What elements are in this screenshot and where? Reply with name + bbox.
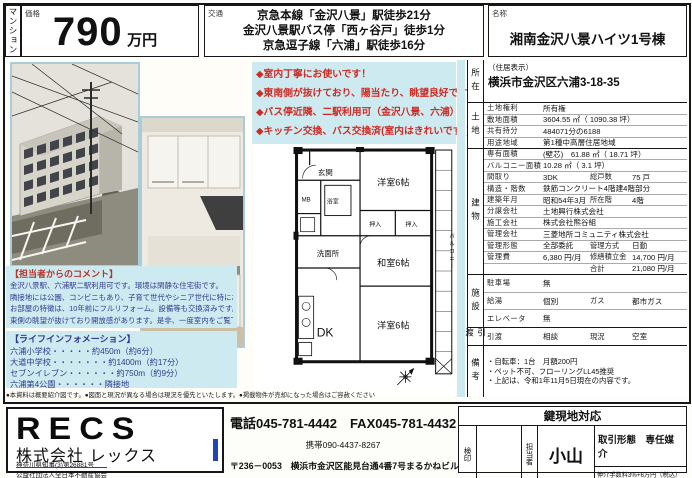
key-handling-box: 鍵現地対応 検印 担当者 小山 取引形態 専任媒介 仲介手数料3%+6万円（税込… (458, 406, 687, 473)
table-row: バルコニー面積10.28 ㎡（ 3.1 坪） (484, 160, 687, 171)
company-address: 〒236－0053 横浜市金沢区能見台通4番7号まるかねビル3-ノ (230, 459, 456, 472)
life-info-line: セブンイレブン・・・・・・約750m（約9分） (10, 368, 233, 379)
life-info-title: 【ライフインフォメーション】 (10, 333, 233, 346)
location-note: （住居表示） (484, 60, 687, 73)
agent-comment-title: 【担当者からのコメント】 (10, 268, 233, 280)
remarks-tag: 備考 (468, 346, 484, 397)
floorplan-closet2-label: 押入 (405, 221, 417, 229)
facility-tag: 施設 (468, 275, 484, 327)
remark-line: ・ペット不可、フローリングLL45推奨 (484, 367, 687, 377)
life-info-box: 【ライフインフォメーション】 六浦小学校・・・・・約450m（約6分） 大道中学… (6, 331, 237, 388)
fine-print: ●本資料は概要紹介図です。●図面と現況が異なる場合は現況を優先といたします。●掲… (6, 390, 456, 399)
floorplan-closet1-label: 押入 (369, 221, 381, 229)
contact-block: 電話045-781-4442 FAX045-781-4432 携帯090-443… (230, 409, 456, 473)
highlight-line: ◆東南側が抜けており、陽当たり、眺望良好です！ (256, 84, 452, 103)
remark-line: ・自転車：1台 月額200円 (484, 357, 687, 367)
land-tag: 土地 (468, 103, 484, 148)
property-name: 湘南金沢八景ハイツ1号棟 (489, 28, 686, 48)
property-category-tab: マンション (5, 5, 21, 57)
floor-plan: 玄関 MB 浴室 洗面所 洋室6帖 押入 押入 和室6帖 洋室6帖 DK バルコ… (254, 145, 456, 395)
phone-fax: 電話045-781-4442 FAX045-781-4432 (230, 413, 456, 432)
agent-comment-line: お部屋の特徴は、10年前にフルリフォーム。設備等も交換済みです。 (10, 303, 233, 315)
price-box: 価格 790 万円 (21, 5, 199, 57)
seal-label: 検印 (459, 426, 477, 478)
section-handover: 引渡 引渡相談現況空室 (468, 328, 687, 346)
table-row: 用途地域第1種中高層住居地域 (484, 138, 687, 149)
floorplan-balcony-label: バルコニー (447, 233, 455, 271)
agent-comment-box: 【担当者からのコメント】 金沢八景駅、六浦駅二駅利用可です。環境は閑静な住宅街で… (6, 266, 237, 328)
floorplan-mb-label: MB (302, 197, 311, 203)
table-row: エレベータ無 (484, 310, 687, 327)
agent-comment-line: 東側の眺望が抜けており開放感があります。是非、一度室内をご覧下さい！ (10, 315, 233, 327)
life-info-line: 六浦小学校・・・・・約450m（約6分） (10, 346, 233, 357)
key-handling-title: 鍵現地対応 (459, 407, 686, 426)
access-line: 金沢八景駅バス停「西ヶ谷戸」徒歩1分 (243, 24, 445, 39)
table-row: 分譲会社土地興行株式会社 (484, 206, 687, 217)
floorplan-washitsu-label: 和室6帖 (377, 257, 409, 268)
access-box: 交通 京急本線「金沢八景」駅徒歩21分 金沢八景駅バス停「西ヶ谷戸」徒歩1分 京… (204, 5, 484, 57)
table-row: 共有持分484071分の6188 (484, 126, 687, 138)
section-land: 土地 土地権利所有権 敷地面積3604.55 ㎡（ 1090.38 坪） 共有持… (468, 103, 687, 149)
floorplan-western2-label: 洋室6帖 (377, 319, 409, 330)
table-row: 施工会社株式会社熊谷組 (484, 218, 687, 229)
table-row: 管理費6,380 円/月修繕積立金14,700 円/月 (484, 252, 687, 263)
section-location: 所在 （住居表示） 横浜市金沢区六浦3-18-35 (468, 60, 687, 103)
price-amount: 790 (53, 10, 123, 54)
floorplan-western1-label: 洋室6帖 (377, 176, 409, 187)
company-logo-box: RECS 株式会社 レックス 神奈川県知事(3)第26881号 公益社団法人全日… (6, 407, 224, 473)
agent-comment-line: 金沢八景駅、六浦駅二駅利用可です。環境は閑静な住宅街です。 (10, 280, 233, 292)
table-row: 管理会社三菱地所コミュニティ株式会社 (484, 229, 687, 240)
table-row: 専有面積(壁芯) 61.88 ㎡（ 18.71 坪） (484, 149, 687, 160)
deal-type: 取引形態 専任媒介 (595, 426, 686, 467)
life-info-line: 大道中学校・・・・・・・約1400m（約17分） (10, 357, 233, 368)
price-value-line: 790 万円 (22, 10, 188, 55)
handover-tag: 引渡 (468, 328, 484, 345)
real-estate-flyer: マンション 価格 790 万円 交通 京急本線「金沢八景」駅徒歩21分 金沢八景… (0, 0, 692, 478)
access-line: 京急本線「金沢八景」駅徒歩21分 (257, 9, 431, 24)
life-info-line: 六浦第4公園・・・・・・隣接地 (10, 379, 233, 390)
access-label: 交通 (208, 8, 223, 19)
exterior-photo (10, 62, 140, 267)
name-label: 名称 (492, 8, 507, 19)
section-remarks: 備考 ・自転車：1台 月額200円 ・ペット不可、フローリングLL45推奨 ・上… (468, 346, 687, 397)
highlight-line: ◆キッチン交換、バス交換済(室内はきれいです。) (256, 122, 452, 141)
logo-accent-bar (213, 439, 218, 461)
property-name-box: 名称 湘南金沢八景ハイツ1号棟 (488, 5, 687, 57)
floorplan-dk-label: DK (317, 326, 334, 340)
table-row: 給湯個別ガス都市ガス (484, 293, 687, 311)
company-association: 公益社団法人全日本不動産協会 (16, 467, 107, 478)
table-row: 構造・階数鉄筋コンクリート4階建4階部分 (484, 183, 687, 194)
category-label: マンション (7, 7, 19, 55)
table-row: 合計21,080 円/月 (484, 264, 687, 274)
price-unit: 万円 (127, 32, 157, 49)
brokerage-fee: 仲介手数料3%+6万円（税込） (595, 467, 686, 478)
table-row: 駐車場無 (484, 275, 687, 293)
floorplan-genkan-label: 玄関 (318, 167, 333, 177)
floor-plan-drawing: 玄関 MB 浴室 洗面所 洋室6帖 押入 押入 和室6帖 洋室6帖 DK (254, 145, 456, 395)
remark-line: ・上記は、令和1年11月5日現在の内容です。 (484, 376, 687, 386)
table-row: 引渡相談現況空室 (484, 328, 687, 345)
seal-cell (477, 426, 522, 478)
staff-label: 担当者 (522, 426, 538, 478)
highlights-box: ◆室内丁寧にお使いです！ ◆東南側が抜けており、陽当たり、眺望良好です！ ◆バス… (252, 62, 456, 144)
building-tag: 建物 (468, 149, 484, 274)
highlight-line: ◆バス停近隣、二駅利用可（金沢八景、六浦） (256, 103, 452, 122)
floorplan-wash-label: 洗面所 (317, 248, 340, 258)
agent-comment-line: 隣接地には公園、コンビニもあり、子育て世代やシニア世代に特におすすめです。 (10, 292, 233, 304)
table-row: 建築年月昭和54年3月所在階4階 (484, 195, 687, 206)
table-row: 敷地面積3604.55 ㎡（ 1090.38 坪） (484, 115, 687, 127)
location-address: 横浜市金沢区六浦3-18-35 (484, 73, 687, 91)
decorative-strip (457, 60, 465, 397)
section-facility: 施設 駐車場無 給湯個別ガス都市ガス エレベータ無 (468, 275, 687, 328)
exterior-photo-image (12, 64, 138, 265)
highlight-line: ◆室内丁寧にお使いです！ (256, 65, 452, 84)
access-line: 京急逗子線「六浦」駅徒歩16分 (263, 39, 425, 54)
table-row: 土地権利所有権 (484, 103, 687, 115)
table-row: 間取り3DK総戸数75 戸 (484, 172, 687, 183)
location-tag: 所在 (468, 60, 484, 102)
mobile-phone: 携帯090-4437-8267 (230, 439, 456, 451)
property-details-table: 所在 （住居表示） 横浜市金沢区六浦3-18-35 土地 土地権利所有権 敷地面… (467, 60, 687, 397)
table-row: 管理形態全部委託管理方式日勤 (484, 241, 687, 252)
floorplan-bath-label: 浴室 (327, 197, 339, 205)
section-building: 建物 専有面積(壁芯) 61.88 ㎡（ 18.71 坪） バルコニー面積10.… (468, 149, 687, 275)
staff-name: 小山 (538, 426, 595, 478)
